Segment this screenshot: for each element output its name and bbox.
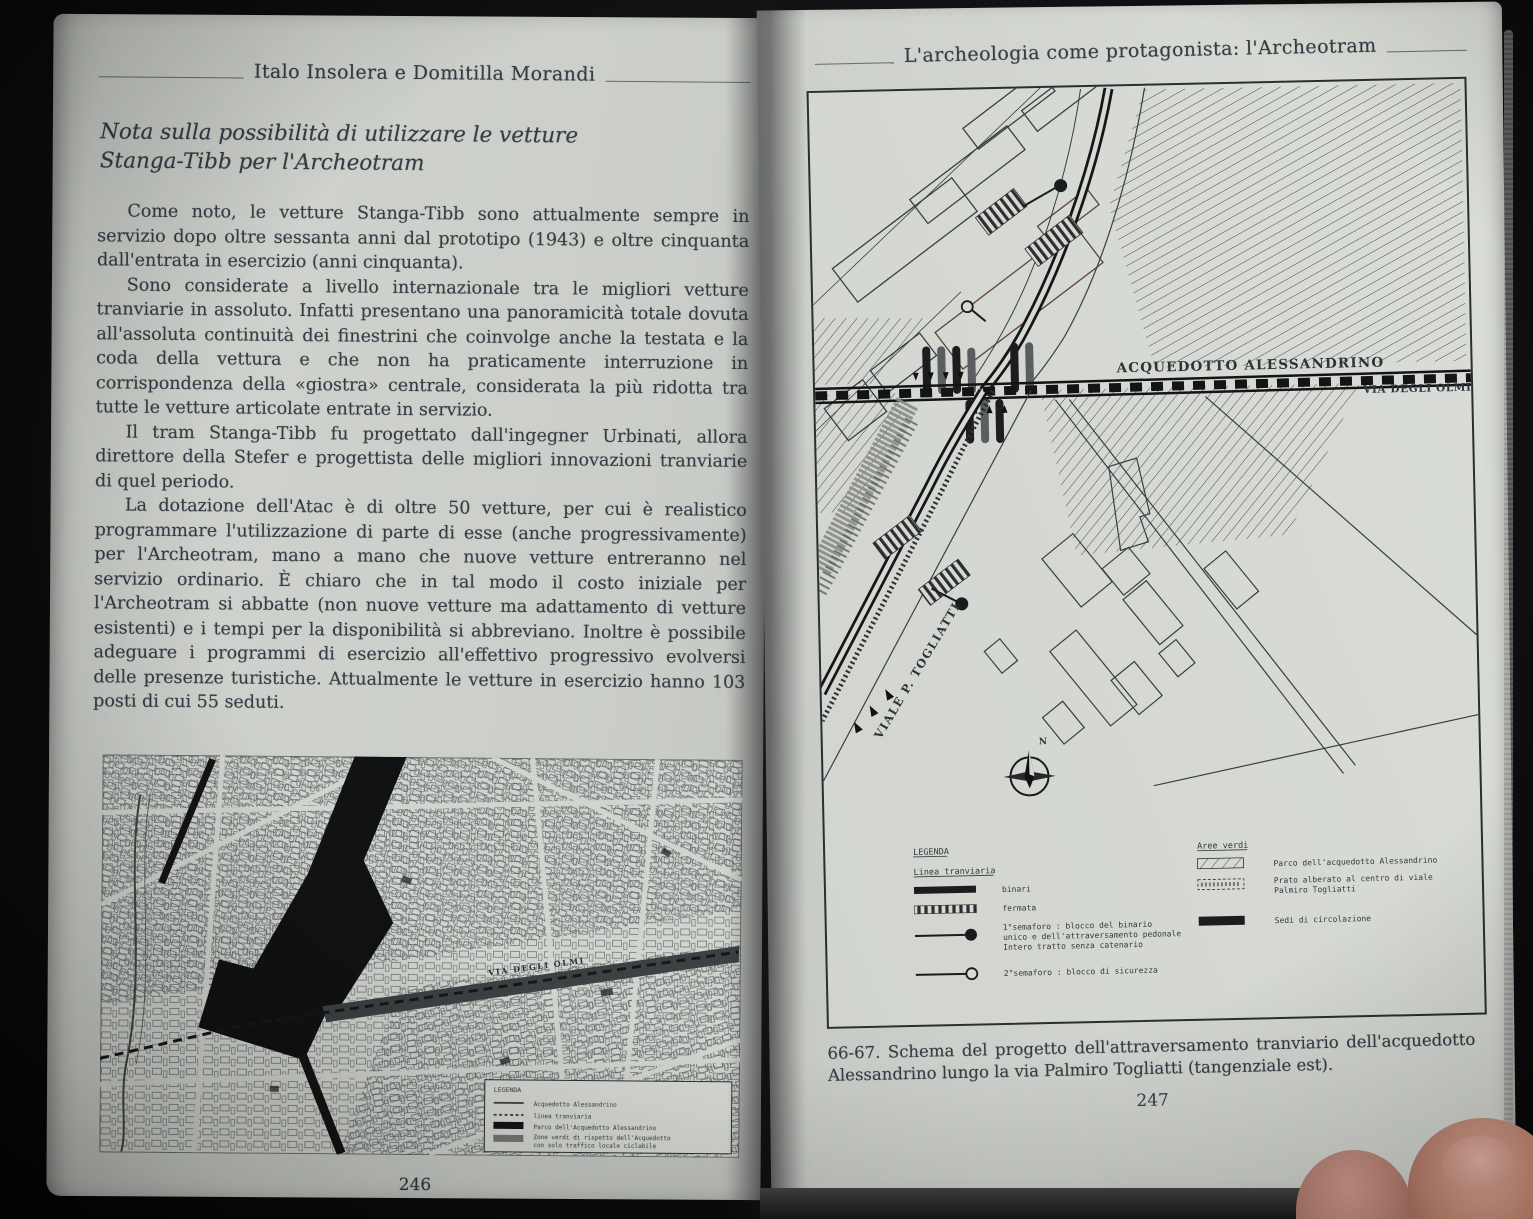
legend-swatch-fermata: [914, 905, 976, 914]
legend-parco-label: Parco dell'acquedotto Alessandrino: [1273, 856, 1437, 869]
legend-title: LEGENDA: [494, 1085, 522, 1093]
label-via-degli-olmi: VIA DEGLI OLMI: [1362, 382, 1472, 396]
legend-sedi-label: Sedi di circolazione: [1275, 914, 1372, 925]
compass-rose-icon: [1003, 750, 1056, 796]
city-map: VIA DEGLI OLMI LEGENDA Acque: [99, 754, 742, 1158]
section-title-line2: Stanga-Tibb per l'Archeotram: [100, 146, 748, 181]
left-page-number: 246: [89, 1172, 741, 1198]
left-map-figure: VIA DEGLI OLMI LEGENDA Acque: [99, 754, 742, 1162]
fingernail: [1442, 1136, 1516, 1194]
book-photo: Italo Insolera e Domitilla Morandi Nota …: [0, 0, 1533, 1219]
running-head-rule: [1387, 49, 1467, 53]
legend-item-tram: linea tranviaria: [534, 1113, 592, 1121]
left-running-head: Italo Insolera e Domitilla Morandi: [99, 59, 751, 87]
legend-item-parco: Parco dell'Acquedotto Alessandrino: [533, 1124, 656, 1132]
running-head-rule: [814, 61, 894, 65]
legend-sem1-line3: Intero tratto senza catenario: [1003, 940, 1143, 952]
right-page-number: 247: [828, 1083, 1476, 1117]
legend-swatch-binari: [914, 886, 976, 894]
right-page: L'archeologia come protagonista: l'Arche…: [757, 1, 1516, 1198]
legend-fermata-label: fermata: [1002, 903, 1036, 913]
running-head-rule: [99, 75, 244, 78]
paragraph: La dotazione dell'Atac è di oltre 50 vet…: [93, 493, 747, 719]
body-text: Come noto, le vetture Stanga-Tibb sono a…: [93, 199, 749, 719]
paragraph: Il tram Stanga-Tibb fu progettato dall'i…: [95, 420, 748, 499]
legend-binari-label: binari: [1002, 884, 1031, 894]
legend-item-zone-l2: con solo traffico locale ciclabile: [533, 1142, 656, 1150]
right-figure: ACQUEDOTTO ALESSANDRINO VIA DEGLI OLMI: [807, 77, 1487, 1029]
label-viale-togliatti: VIALE P. TOGLIATTI: [871, 600, 963, 742]
paragraph: Come noto, le vetture Stanga-Tibb sono a…: [97, 199, 750, 278]
legend-swatch-semaforo2: [916, 968, 978, 980]
left-map-legend: LEGENDA Acquedotto Alessandrino linea tr…: [484, 1079, 732, 1153]
page-stack-edge: [1504, 30, 1513, 1180]
figure-legend: LEGENDA Linea tranviaria binari fermata: [913, 837, 1440, 981]
right-running-head: L'archeologia come protagonista: l'Arche…: [814, 33, 1466, 69]
figure-caption: 66-67. Schema del progetto dell'attraver…: [827, 1029, 1476, 1088]
semaphore-1-symbol: [1023, 179, 1068, 206]
crosswalk-upper: [975, 187, 1084, 268]
running-head-rule: [605, 80, 750, 83]
left-page: Italo Insolera e Domitilla Morandi Nota …: [46, 14, 767, 1200]
compass-north-label: N: [1039, 737, 1047, 747]
legend-item-acquedotto: Acquedotto Alessandrino: [534, 1101, 618, 1109]
running-head-text: L'archeologia come protagonista: l'Arche…: [904, 35, 1377, 67]
legend-swatch-semaforo1: [915, 929, 977, 942]
running-head-text: Italo Insolera e Domitilla Morandi: [254, 61, 596, 86]
legend-swatch-parco: [1197, 858, 1243, 869]
legend-swatch-sedi: [1199, 916, 1245, 926]
legend-item-zone-l1: Zone verdi di rispetto dell'Acquedotto: [533, 1134, 671, 1142]
legend-prato-line1: Prato alberato al centro di viale: [1274, 873, 1433, 885]
legend-prato-line2: Palmiro Togliatti: [1274, 884, 1356, 895]
section-title: Nota sulla possibilità di utilizzare le …: [100, 117, 748, 181]
tram-scheme: ACQUEDOTTO ALESSANDRINO VIA DEGLI OLMI: [809, 79, 1485, 1023]
legend-sem2-label: 2°semaforo : blocco di sicurezza: [1004, 966, 1158, 978]
paragraph: Sono considerate a livello internazional…: [96, 273, 749, 426]
